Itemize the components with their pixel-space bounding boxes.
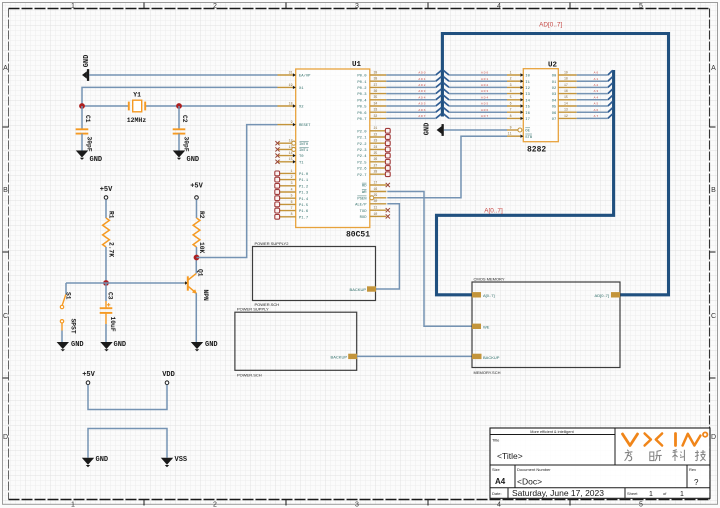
svg-text:O3: O3 [552, 93, 557, 97]
svg-text:17: 17 [374, 180, 378, 184]
svg-text:AD7: AD7 [418, 114, 426, 118]
svg-text:U2: U2 [548, 62, 558, 70]
svg-text:CMOS MEMORY: CMOS MEMORY [474, 276, 505, 281]
svg-text:Q1: Q1 [197, 269, 204, 277]
svg-text:T1: T1 [299, 161, 304, 165]
svg-text:Saturday, June 17, 2023: Saturday, June 17, 2023 [512, 488, 604, 498]
svg-text:A3: A3 [594, 89, 599, 93]
svg-text:More efficient & intelligent: More efficient & intelligent [530, 430, 574, 434]
svg-text:I5: I5 [525, 106, 530, 110]
svg-text:GND: GND [71, 341, 84, 349]
svg-text:3: 3 [291, 181, 293, 185]
svg-text:B: B [711, 187, 716, 194]
svg-text:80C51: 80C51 [346, 231, 370, 240]
svg-text:C2: C2 [181, 115, 188, 123]
svg-text:P2.3: P2.3 [357, 149, 367, 153]
svg-text:AD4: AD4 [418, 95, 426, 99]
svg-text:P1.2: P1.2 [299, 185, 309, 189]
svg-text:8: 8 [291, 212, 293, 216]
svg-text:O6: O6 [552, 112, 557, 116]
svg-text:8282: 8282 [527, 146, 546, 155]
svg-text:29: 29 [374, 193, 378, 197]
svg-text:GND: GND [187, 156, 200, 164]
svg-text:Sheet: Sheet [627, 491, 638, 496]
svg-text:P2.5: P2.5 [357, 161, 367, 165]
svg-text:EA/VP: EA/VP [299, 74, 311, 79]
svg-text:25: 25 [374, 151, 378, 155]
svg-text:14: 14 [564, 101, 568, 105]
svg-text:5: 5 [639, 502, 643, 508]
svg-text:6: 6 [510, 101, 512, 105]
svg-text:P2.0: P2.0 [357, 130, 367, 134]
svg-text:5: 5 [291, 194, 293, 198]
svg-text:P0.0: P0.0 [357, 75, 367, 79]
svg-text:AD2: AD2 [418, 83, 426, 87]
svg-text:O4: O4 [552, 99, 557, 103]
svg-text:4: 4 [497, 502, 501, 508]
svg-text:GND: GND [90, 156, 103, 164]
svg-text:P1.0: P1.0 [299, 173, 309, 177]
svg-text:STB: STB [525, 136, 533, 140]
svg-text:U1: U1 [352, 61, 362, 69]
svg-text:35: 35 [374, 95, 378, 99]
svg-text:A4: A4 [495, 477, 506, 486]
svg-text:Title: Title [492, 438, 500, 443]
svg-text:X2: X2 [299, 106, 304, 110]
svg-text:33: 33 [374, 108, 378, 112]
svg-text:T0: T0 [299, 155, 304, 159]
svg-text:14: 14 [289, 151, 293, 155]
svg-text:P1.7: P1.7 [299, 216, 308, 220]
svg-text:Date:: Date: [492, 491, 502, 496]
svg-text:1: 1 [649, 491, 653, 498]
svg-text:28: 28 [374, 170, 378, 174]
svg-text:Document Number: Document Number [517, 467, 551, 472]
svg-text:39: 39 [374, 70, 378, 74]
svg-text:12: 12 [564, 114, 568, 118]
svg-text:INT0: INT0 [299, 143, 309, 147]
svg-text:P0.1: P0.1 [357, 81, 367, 85]
svg-text:X1: X1 [299, 87, 304, 91]
svg-text:I4: I4 [525, 99, 530, 103]
svg-text:VSS: VSS [175, 456, 188, 464]
svg-text:AD5: AD5 [481, 102, 489, 106]
svg-text:O7: O7 [552, 118, 557, 122]
svg-text:?: ? [694, 478, 699, 487]
svg-text:A: A [711, 65, 716, 72]
svg-text:AD1: AD1 [418, 77, 426, 81]
svg-text:16: 16 [374, 187, 378, 191]
svg-text:34: 34 [374, 101, 378, 105]
svg-text:A: A [3, 65, 8, 72]
svg-text:GND: GND [205, 341, 218, 349]
svg-text:2: 2 [510, 77, 512, 81]
svg-text:AD4: AD4 [481, 95, 489, 99]
svg-text:19: 19 [289, 83, 293, 87]
svg-text:38: 38 [374, 77, 378, 81]
svg-text:11: 11 [508, 132, 512, 136]
svg-text:A4: A4 [594, 95, 599, 99]
svg-text:C3: C3 [107, 292, 114, 300]
svg-text:A[0..7]: A[0..7] [484, 208, 503, 215]
svg-text:11: 11 [374, 206, 378, 210]
svg-text:32: 32 [374, 114, 378, 118]
svg-text:36: 36 [374, 89, 378, 93]
svg-text:P0.5: P0.5 [357, 106, 367, 110]
svg-text:AD2: AD2 [481, 83, 489, 87]
svg-text:ALE/P: ALE/P [355, 202, 367, 207]
svg-text:37: 37 [374, 83, 378, 87]
svg-text:AD7: AD7 [481, 114, 489, 118]
svg-text:AD0: AD0 [418, 71, 426, 75]
svg-text:A6: A6 [594, 108, 599, 112]
svg-text:17: 17 [564, 83, 568, 87]
svg-text:24: 24 [374, 145, 378, 149]
svg-text:<Doc>: <Doc> [517, 477, 542, 487]
svg-text:8: 8 [510, 114, 512, 118]
svg-text:O2: O2 [552, 87, 557, 91]
svg-text:POWER.SCH: POWER.SCH [237, 373, 262, 378]
svg-text:<Title>: <Title> [497, 451, 523, 461]
svg-text:2: 2 [213, 502, 217, 508]
svg-text:C: C [711, 313, 716, 320]
svg-text:PSEN: PSEN [357, 197, 366, 201]
svg-text:30: 30 [374, 199, 378, 203]
svg-text:P0.2: P0.2 [357, 87, 367, 91]
svg-text:POWER SUPPLY: POWER SUPPLY [237, 307, 269, 312]
svg-text:P1.1: P1.1 [299, 179, 309, 183]
svg-text:1: 1 [71, 3, 75, 10]
svg-text:I0: I0 [525, 75, 530, 79]
svg-text:AD1: AD1 [481, 77, 489, 81]
svg-text:5: 5 [639, 3, 643, 10]
svg-text:4: 4 [291, 187, 293, 191]
svg-text:SPST: SPST [70, 319, 77, 334]
svg-text:7: 7 [510, 108, 512, 112]
svg-text:12MHz: 12MHz [127, 117, 147, 124]
svg-text:27: 27 [374, 163, 378, 167]
svg-text:RXD: RXD [360, 216, 368, 220]
svg-text:15: 15 [564, 95, 568, 99]
svg-text:P0.4: P0.4 [357, 99, 367, 103]
svg-text:22: 22 [374, 132, 378, 136]
svg-text:Size: Size [492, 467, 501, 472]
svg-text:A2: A2 [594, 83, 599, 87]
svg-text:2: 2 [291, 175, 293, 179]
svg-text:2: 2 [213, 3, 217, 10]
svg-text:O1: O1 [552, 81, 557, 85]
svg-text:P0.6: P0.6 [357, 112, 367, 116]
svg-text:P0.7: P0.7 [357, 118, 366, 122]
svg-text:15: 15 [289, 157, 293, 161]
svg-text:10: 10 [374, 212, 378, 216]
svg-text:RESET: RESET [299, 124, 311, 128]
svg-text:RD: RD [362, 185, 367, 189]
svg-text:S1: S1 [64, 292, 71, 300]
svg-text:BACKUP: BACKUP [350, 287, 367, 292]
svg-text:23: 23 [374, 139, 378, 143]
svg-text:I1: I1 [525, 81, 530, 85]
svg-text:R1: R1 [108, 211, 115, 219]
svg-text:31: 31 [289, 70, 293, 74]
svg-text:I6: I6 [525, 112, 530, 116]
svg-text:A0: A0 [594, 71, 599, 75]
svg-text:R2: R2 [198, 211, 205, 219]
svg-text:WE: WE [483, 325, 490, 330]
svg-text:+5V: +5V [190, 183, 203, 191]
svg-text:WR: WR [362, 191, 367, 195]
svg-text:18: 18 [564, 77, 568, 81]
svg-text:3: 3 [510, 83, 512, 87]
svg-text:Rev: Rev [689, 467, 696, 472]
svg-text:VDD: VDD [162, 371, 175, 379]
svg-text:19: 19 [564, 70, 568, 74]
svg-text:GND: GND [114, 341, 127, 349]
svg-text:AD6: AD6 [481, 108, 489, 112]
svg-text:C1: C1 [84, 115, 91, 123]
svg-text:A7: A7 [594, 114, 599, 118]
svg-text:O5: O5 [552, 106, 557, 110]
svg-text:POWER SUPPLY2: POWER SUPPLY2 [255, 241, 290, 246]
svg-text:P2.1: P2.1 [357, 137, 367, 141]
svg-text:30pF: 30pF [86, 137, 93, 152]
svg-text:I3: I3 [525, 93, 530, 97]
svg-text:13: 13 [564, 108, 568, 112]
svg-text:4: 4 [497, 3, 501, 10]
svg-text:D: D [711, 434, 716, 441]
svg-text:P1.4: P1.4 [299, 198, 309, 202]
svg-text:1: 1 [510, 70, 512, 74]
svg-text:+5V: +5V [82, 371, 95, 379]
svg-text:5: 5 [510, 95, 512, 99]
svg-text:6: 6 [291, 200, 293, 204]
svg-text:4: 4 [510, 89, 512, 93]
svg-text:26: 26 [374, 157, 378, 161]
svg-text:7: 7 [291, 206, 293, 210]
svg-text:AD3: AD3 [481, 89, 489, 93]
svg-text:3: 3 [355, 3, 359, 10]
svg-text:O0: O0 [552, 75, 557, 79]
svg-text:9: 9 [291, 120, 293, 124]
svg-text:P1.5: P1.5 [299, 204, 309, 208]
svg-text:AD[0..7]: AD[0..7] [595, 293, 609, 298]
svg-text:Y1: Y1 [133, 92, 141, 99]
svg-text:P2.6: P2.6 [357, 168, 367, 172]
svg-text:AD6: AD6 [418, 108, 426, 112]
svg-text:OE: OE [525, 130, 530, 134]
svg-text:18: 18 [289, 101, 293, 105]
svg-text:BACKUP: BACKUP [483, 355, 500, 360]
svg-text:1: 1 [71, 502, 75, 508]
svg-text:NPN: NPN [202, 290, 209, 302]
svg-text:A1: A1 [594, 77, 599, 81]
svg-text:30pF: 30pF [183, 137, 190, 152]
svg-text:INT1: INT1 [299, 149, 309, 153]
svg-text:9: 9 [510, 125, 512, 129]
svg-text:I2: I2 [525, 87, 530, 91]
svg-text:1: 1 [680, 491, 684, 498]
svg-text:GND: GND [96, 456, 109, 464]
svg-text:P1.3: P1.3 [299, 192, 309, 196]
svg-text:B: B [3, 187, 8, 194]
svg-text:A5: A5 [594, 102, 599, 106]
svg-text:P2.4: P2.4 [357, 155, 367, 159]
svg-text:AD[0..7]: AD[0..7] [539, 22, 562, 29]
svg-text:TXD: TXD [360, 210, 368, 214]
svg-text:2.7K: 2.7K [108, 242, 115, 257]
svg-text:D: D [3, 434, 8, 441]
svg-text:GND: GND [423, 123, 431, 136]
svg-text:MEMORY.SCH: MEMORY.SCH [474, 370, 501, 375]
svg-text:16: 16 [564, 89, 568, 93]
svg-text:10uF: 10uF [109, 317, 116, 332]
svg-text:P2.7: P2.7 [357, 174, 366, 178]
svg-text:AD0: AD0 [481, 71, 489, 75]
svg-text:+5V: +5V [100, 186, 113, 194]
svg-text:AD3: AD3 [418, 89, 426, 93]
svg-text:3: 3 [355, 502, 359, 508]
svg-text:A[0..7]: A[0..7] [483, 293, 495, 298]
svg-text:P0.3: P0.3 [357, 93, 367, 97]
svg-text:GND: GND [83, 55, 91, 68]
svg-text:P1.6: P1.6 [299, 210, 309, 214]
svg-text:1: 1 [291, 169, 293, 173]
svg-text:AD5: AD5 [418, 102, 426, 106]
svg-text:I7: I7 [525, 118, 530, 122]
svg-text:10K: 10K [198, 242, 205, 254]
svg-text:21: 21 [374, 126, 378, 130]
svg-text:BACKUP: BACKUP [331, 355, 348, 360]
svg-text:P2.2: P2.2 [357, 143, 367, 147]
svg-text:C: C [3, 313, 8, 320]
